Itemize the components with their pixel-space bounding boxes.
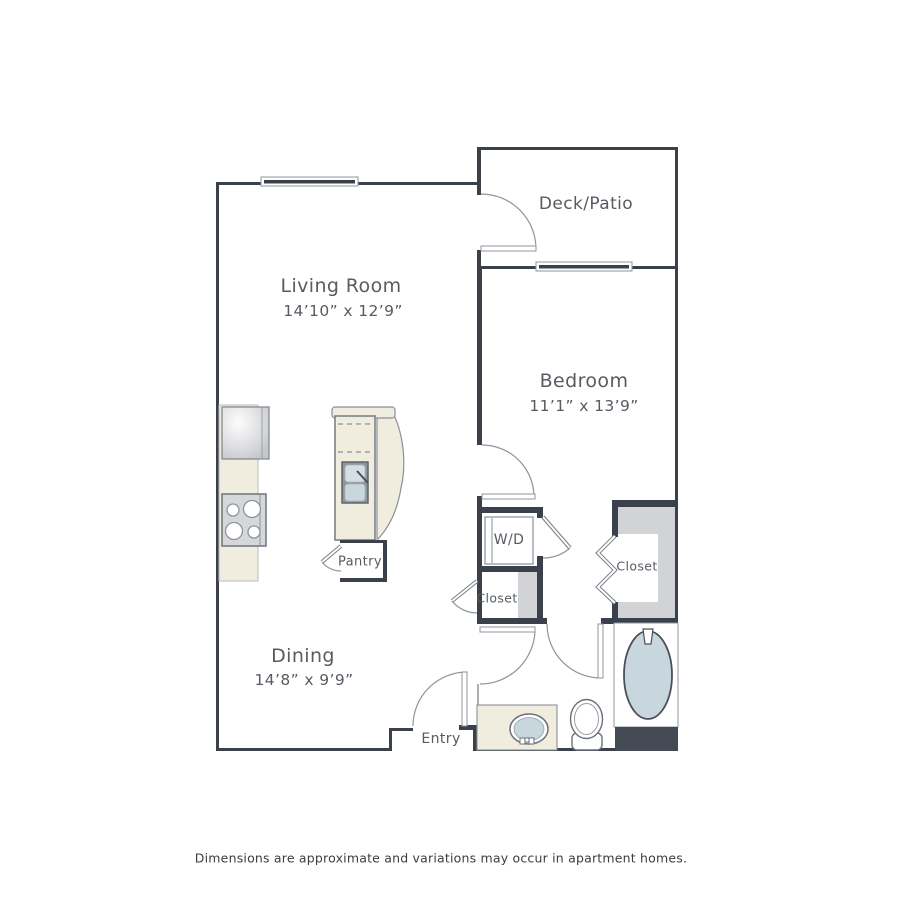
wd-closet-door bbox=[543, 517, 570, 558]
bedroom-door-swing bbox=[482, 445, 534, 497]
living-room-label: Living Room bbox=[280, 275, 401, 297]
windows bbox=[261, 177, 632, 271]
entry-door-swing bbox=[413, 672, 467, 726]
bathroom-hall-door-swing bbox=[547, 624, 601, 678]
bedroom-dims: 11’1” x 13’9” bbox=[529, 397, 638, 415]
deck-door-leaf bbox=[481, 246, 536, 251]
wall-wd-closet-divider bbox=[477, 566, 543, 572]
floorplan-drawing bbox=[0, 0, 900, 900]
pantry-bottom-wall bbox=[340, 578, 387, 582]
wall-wd-top bbox=[477, 507, 543, 513]
wd-door-leaf-inner bbox=[543, 517, 570, 548]
wall-bedroom-closet-top bbox=[612, 500, 678, 507]
wall-hall-closet-bottom bbox=[477, 618, 547, 624]
vanity-faucet-spout bbox=[525, 738, 529, 742]
tub-end-wall-block bbox=[615, 727, 678, 751]
burner-top-right bbox=[244, 501, 261, 518]
disclaimer-text: Dimensions are approximate and variation… bbox=[195, 851, 687, 866]
hall-closet-leaf-inner bbox=[452, 581, 477, 601]
deck-door-swing bbox=[481, 194, 536, 249]
hall-closet-door bbox=[452, 581, 477, 613]
vanity-faucet-handle-left bbox=[520, 738, 525, 744]
bedroom-closet-bifold bbox=[598, 536, 615, 603]
sink-basin-upper bbox=[345, 465, 365, 482]
wd-door-swing bbox=[543, 548, 570, 558]
wall-bedroom-closet-left-upper bbox=[612, 500, 618, 537]
wall-deck-left-upper bbox=[477, 147, 481, 195]
bathroom-door-leaf bbox=[480, 627, 535, 632]
wall-hall-left bbox=[477, 507, 482, 624]
wall-bath-left bbox=[473, 725, 477, 751]
bedroom-closet-label: Closet bbox=[616, 559, 657, 574]
pantry-top-wall bbox=[340, 540, 387, 543]
living-room-window-glass bbox=[264, 180, 355, 184]
bedroom-door-leaf bbox=[482, 494, 535, 499]
burner-bottom-left bbox=[226, 523, 243, 540]
wall-bedroom-door-stub bbox=[477, 496, 482, 507]
living-room-dims: 14’10” x 12’9” bbox=[283, 302, 403, 320]
bathroom-door-swing bbox=[480, 629, 535, 684]
bathroom-hall-door-leaf bbox=[598, 624, 603, 678]
pantry-right-wall bbox=[383, 540, 387, 582]
wall-deck-top bbox=[477, 147, 678, 150]
island-bar-curve bbox=[377, 411, 404, 539]
wall-hall-closet-right bbox=[537, 572, 543, 624]
burner-top-left bbox=[227, 504, 239, 516]
entry-door-leaf bbox=[462, 672, 467, 726]
wall-bottom-left bbox=[216, 748, 392, 751]
hall-closet-shade bbox=[518, 572, 539, 618]
entry-label: Entry bbox=[421, 731, 460, 747]
bedroom-label: Bedroom bbox=[540, 370, 629, 392]
toilet-bowl-inner bbox=[575, 704, 599, 735]
burner-bottom-right bbox=[248, 526, 260, 538]
tub-faucet bbox=[643, 629, 653, 644]
deck-patio-label: Deck/Patio bbox=[539, 194, 633, 214]
wall-wd-right-upper-stub bbox=[537, 507, 543, 518]
bedroom-window-glass bbox=[539, 265, 629, 269]
dining-dims: 14’8” x 9’9” bbox=[254, 671, 353, 689]
vanity-sink-basin bbox=[514, 718, 544, 741]
wall-living-bedroom bbox=[477, 269, 482, 445]
bathroom bbox=[477, 623, 678, 751]
bifold-outer bbox=[598, 536, 615, 603]
dining-label: Dining bbox=[271, 645, 335, 667]
hall-closet-label: Closet bbox=[476, 591, 517, 606]
hall-closet-door-swing bbox=[452, 601, 477, 613]
wall-entry-step-horizontal bbox=[389, 728, 413, 731]
floorplan-canvas: Deck/Patio Living Room 14’10” x 12’9” Be… bbox=[0, 0, 900, 900]
vanity-faucet-handle-right bbox=[529, 738, 534, 744]
wall-entry-step-vertical bbox=[389, 728, 392, 751]
wd-label: W/D bbox=[494, 532, 525, 548]
sink-basin-lower bbox=[345, 484, 365, 501]
pantry-label: Pantry bbox=[338, 555, 382, 570]
